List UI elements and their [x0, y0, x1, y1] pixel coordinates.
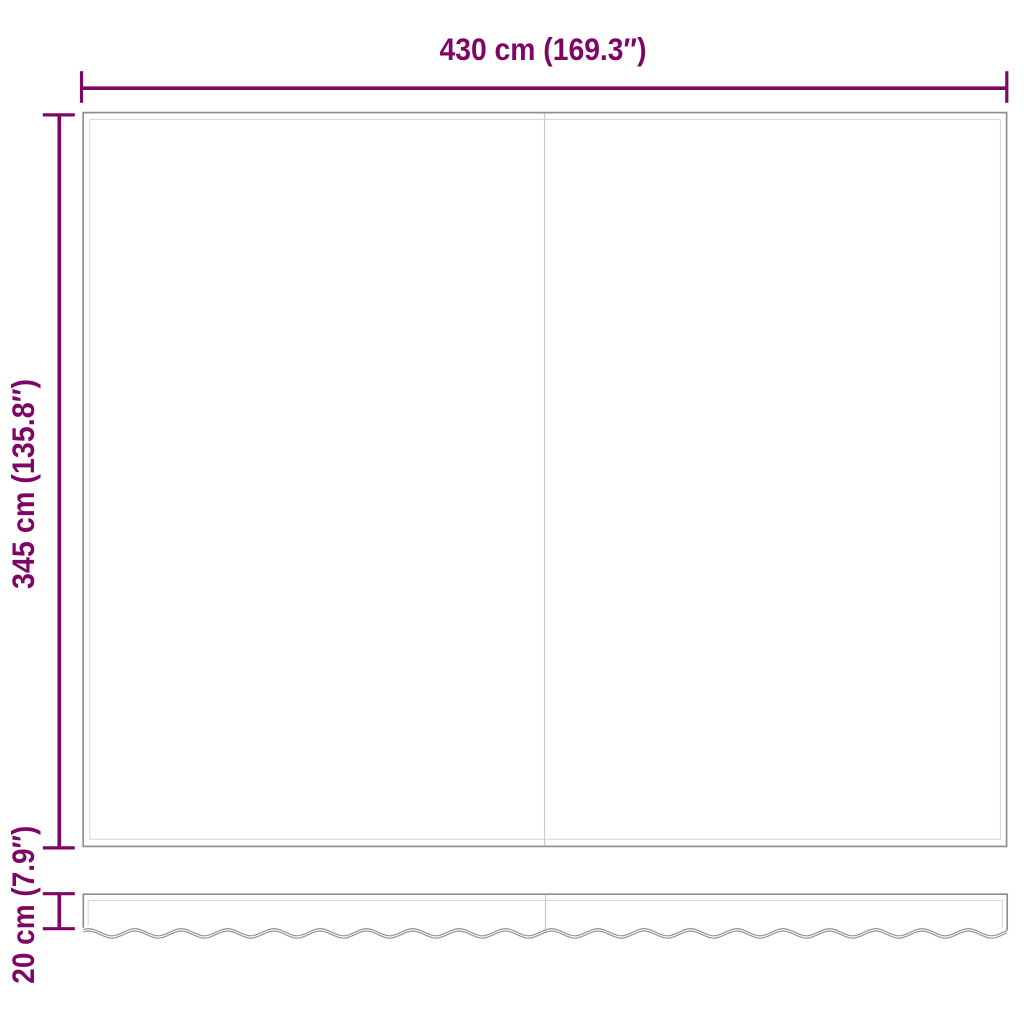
svg-text:345 cm (135.8″): 345 cm (135.8″): [6, 379, 41, 589]
svg-text:430 cm (169.3″): 430 cm (169.3″): [440, 32, 647, 67]
svg-text:20 cm (7.9″): 20 cm (7.9″): [6, 826, 41, 984]
